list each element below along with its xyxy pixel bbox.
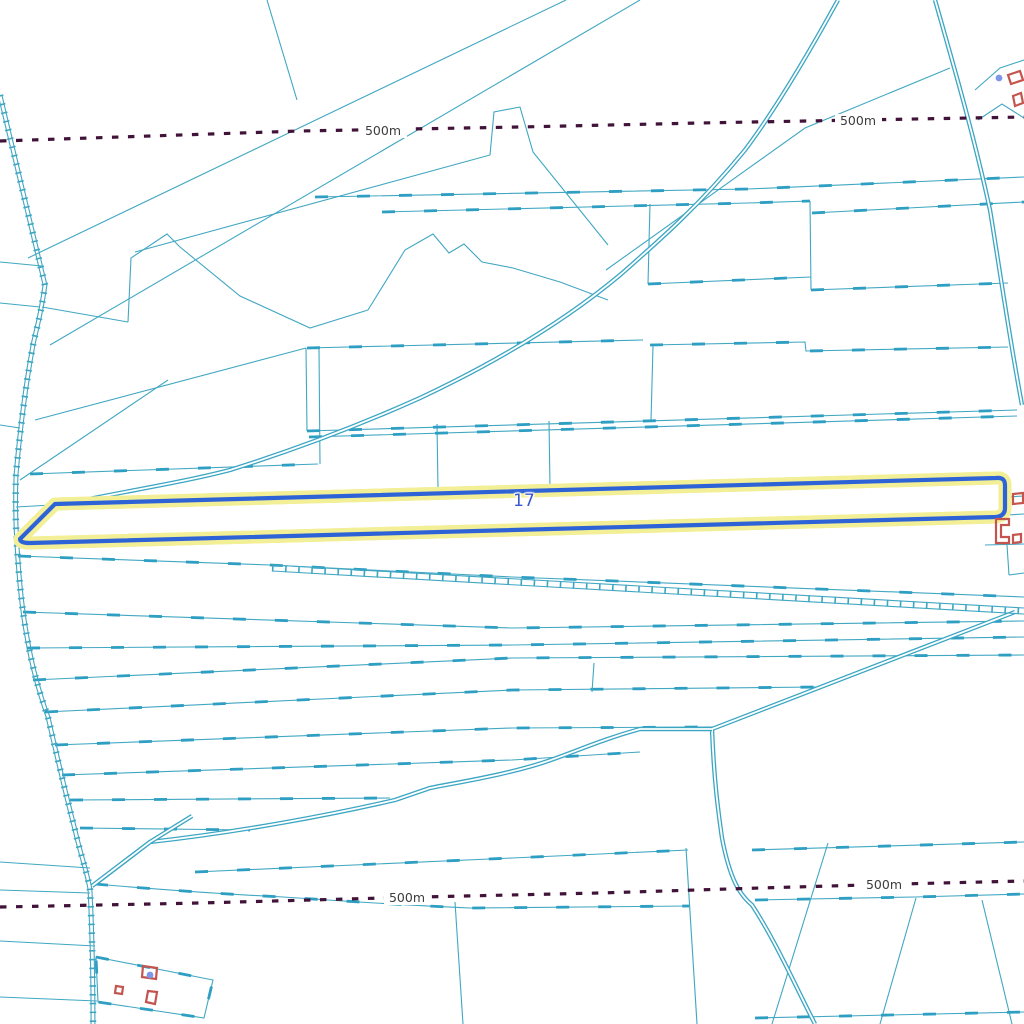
building-footprint <box>1008 71 1023 84</box>
contour-label: 500m <box>389 892 425 905</box>
point-marker <box>147 972 154 979</box>
building-footprint <box>1013 534 1021 543</box>
building-footprint <box>115 986 123 994</box>
parcel-boundaries-layer <box>0 177 1024 1024</box>
building-footprint <box>1013 493 1023 504</box>
building-footprint <box>146 991 157 1004</box>
field-track-lines-layer <box>20 0 1024 480</box>
map-canvas[interactable]: 500m 500m 500m 500m 17 <box>0 0 1024 1024</box>
contour-label: 500m <box>365 125 401 138</box>
contour-label: 500m <box>866 879 902 892</box>
ticked-boundary-line <box>272 565 1024 614</box>
point-marker <box>996 75 1003 82</box>
railway-line <box>0 95 95 1024</box>
building-footprint <box>1013 93 1023 106</box>
selected-parcel-label: 17 <box>513 491 535 511</box>
contour-label: 500m <box>840 115 876 128</box>
map-layers <box>0 0 1024 1024</box>
